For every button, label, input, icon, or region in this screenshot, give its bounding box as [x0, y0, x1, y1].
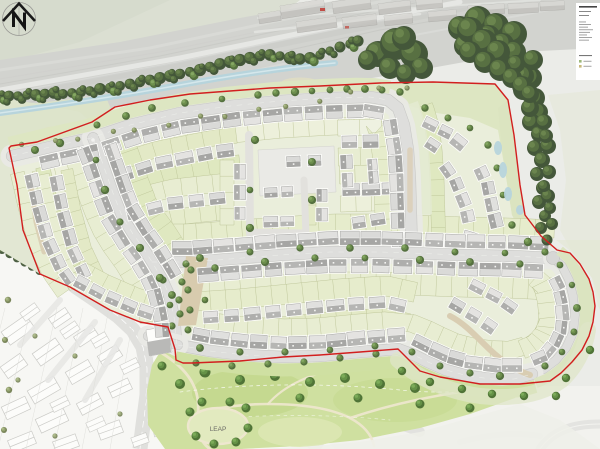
svg-text:LEAP: LEAP — [210, 426, 227, 433]
